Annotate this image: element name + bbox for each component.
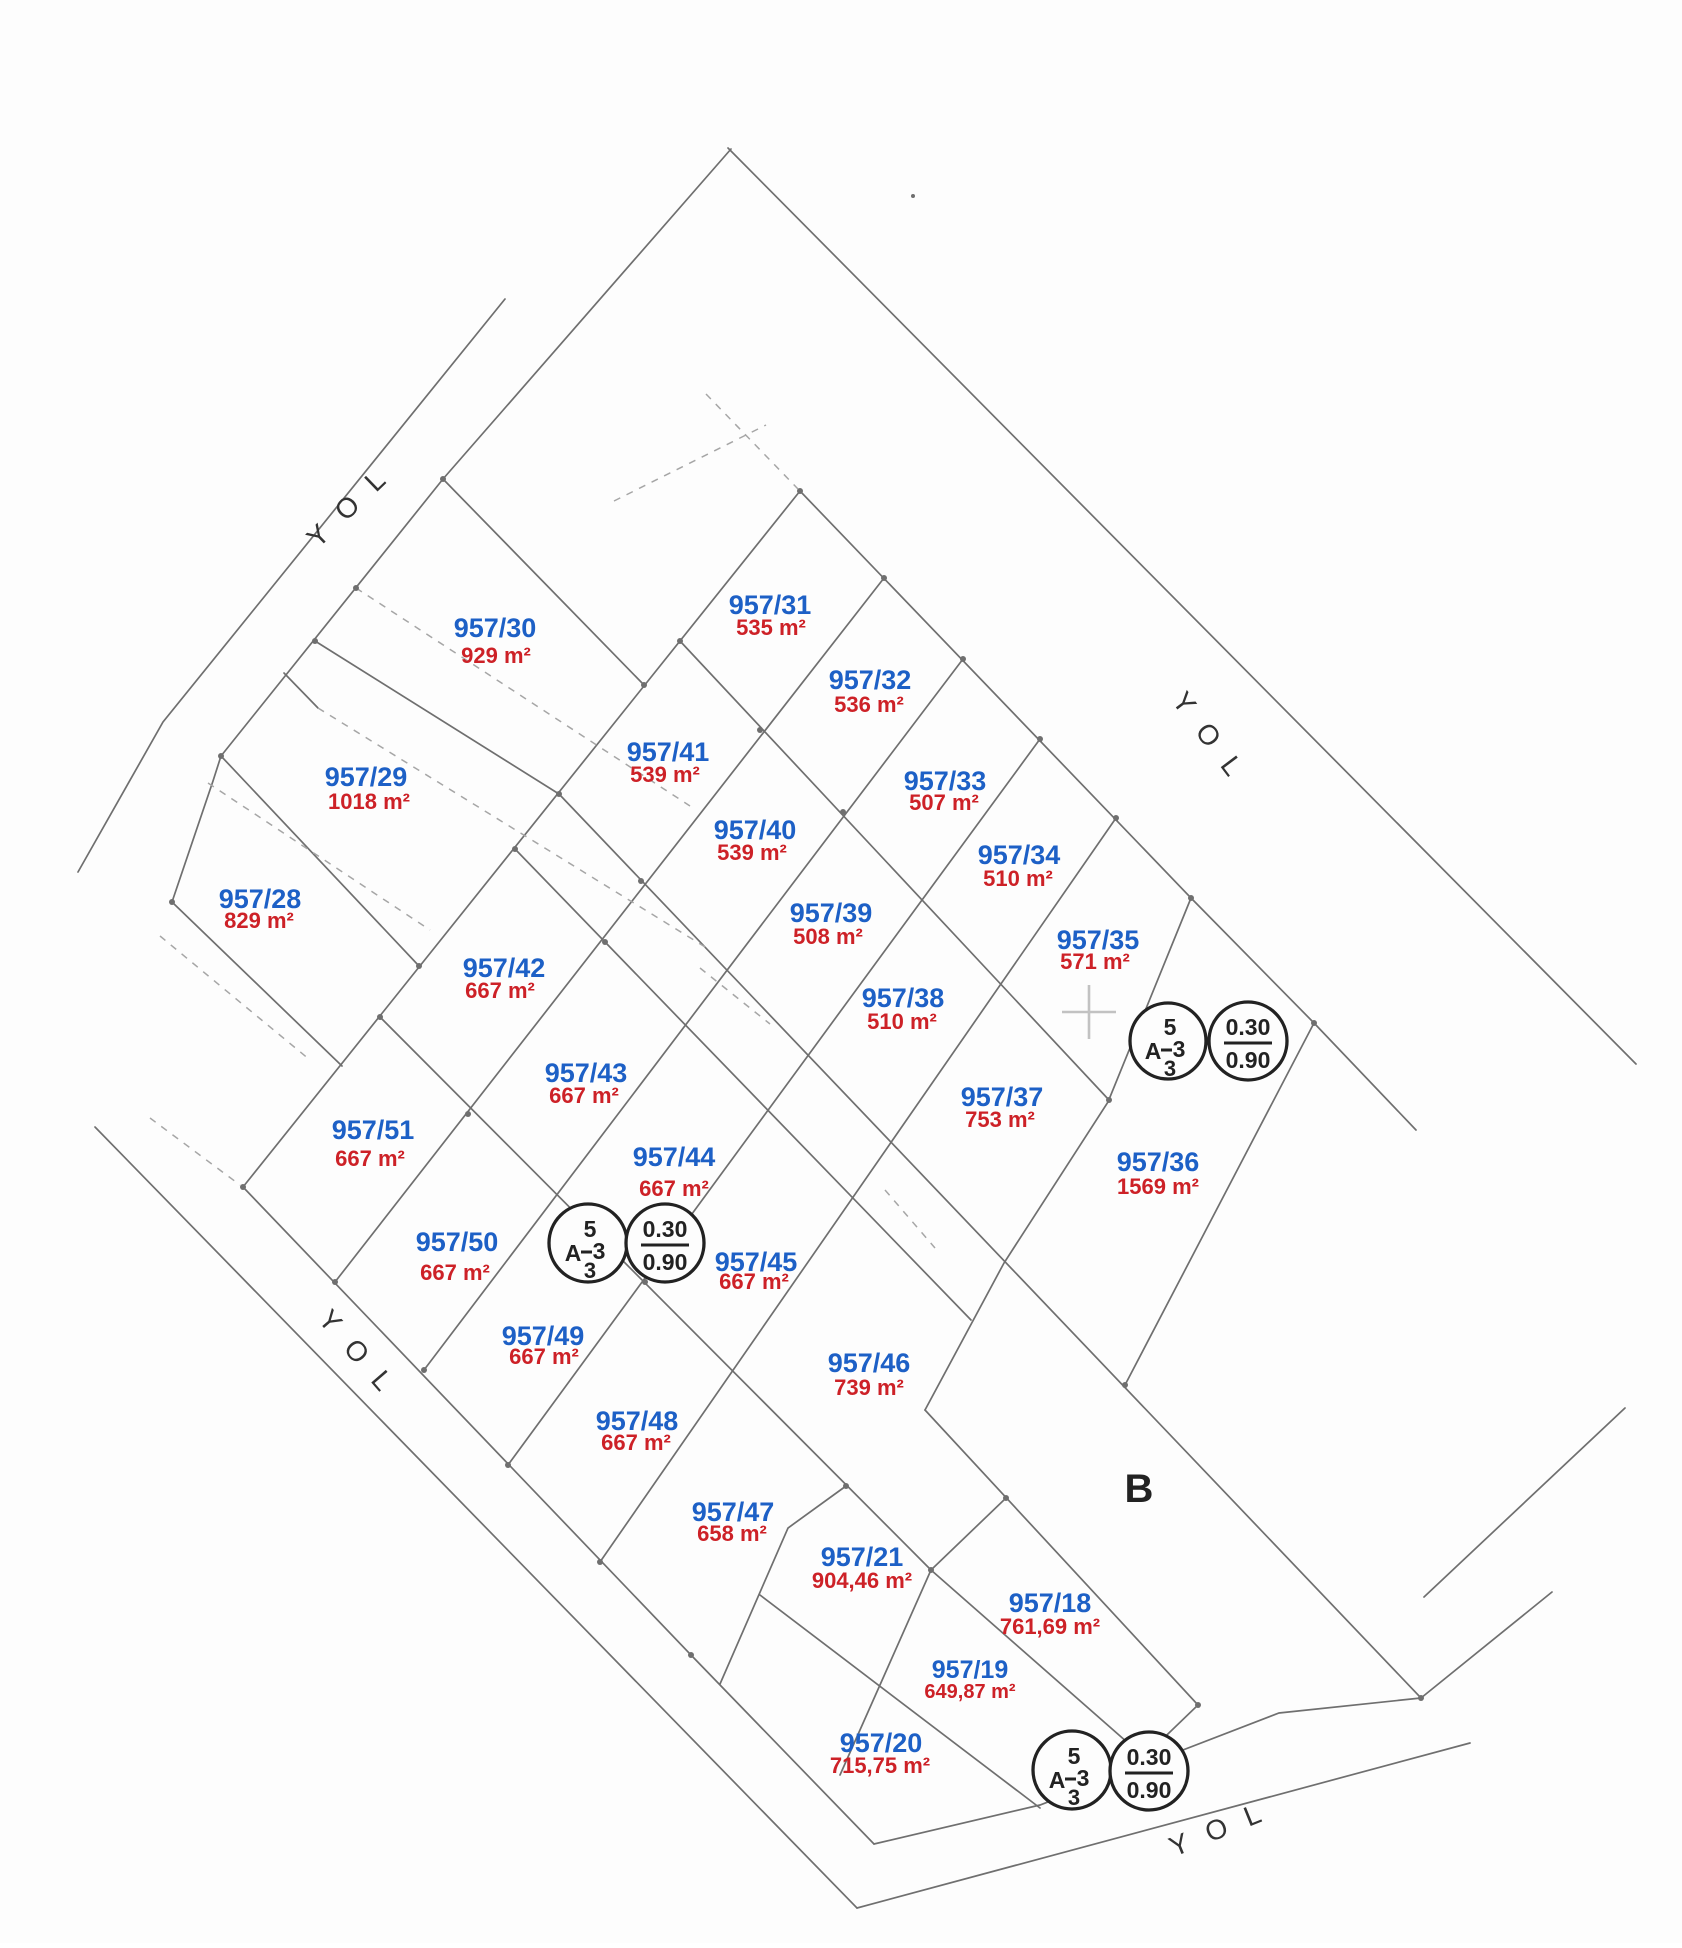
svg-text:929 m²: 929 m² — [461, 643, 531, 668]
svg-text:535 m²: 535 m² — [736, 615, 806, 640]
svg-text:0.90: 0.90 — [1127, 1777, 1172, 1803]
svg-text:508 m²: 508 m² — [793, 924, 863, 949]
svg-text:510 m²: 510 m² — [867, 1009, 937, 1034]
svg-text:0.30: 0.30 — [1127, 1744, 1172, 1770]
svg-text:957/29: 957/29 — [325, 762, 408, 792]
svg-text:539 m²: 539 m² — [717, 840, 787, 865]
svg-text:667 m²: 667 m² — [601, 1430, 671, 1455]
svg-text:649,87 m²: 649,87 m² — [924, 1681, 1016, 1703]
svg-text:667 m²: 667 m² — [420, 1260, 490, 1285]
svg-text:667 m²: 667 m² — [719, 1269, 789, 1294]
svg-text:B: B — [1125, 1467, 1154, 1511]
svg-text:667 m²: 667 m² — [639, 1176, 709, 1201]
svg-text:957/36: 957/36 — [1117, 1147, 1200, 1177]
svg-text:667 m²: 667 m² — [549, 1083, 619, 1108]
svg-text:667 m²: 667 m² — [509, 1344, 579, 1369]
svg-text:957/32: 957/32 — [829, 665, 912, 695]
svg-text:536 m²: 536 m² — [834, 692, 904, 717]
svg-text:0.30: 0.30 — [1226, 1014, 1271, 1040]
svg-text:0.90: 0.90 — [1226, 1047, 1271, 1073]
svg-text:957/50: 957/50 — [416, 1227, 499, 1257]
svg-text:0.30: 0.30 — [643, 1216, 688, 1242]
svg-text:957/46: 957/46 — [828, 1348, 911, 1378]
svg-text:507 m²: 507 m² — [909, 790, 979, 815]
svg-text:A: A — [1049, 1767, 1066, 1793]
svg-text:957/19: 957/19 — [932, 1656, 1008, 1684]
svg-text:761,69 m²: 761,69 m² — [1000, 1614, 1100, 1639]
svg-text:510 m²: 510 m² — [983, 866, 1053, 891]
svg-text:957/30: 957/30 — [454, 613, 537, 643]
svg-text:715,75 m²: 715,75 m² — [830, 1753, 930, 1778]
svg-text:571 m²: 571 m² — [1060, 949, 1130, 974]
svg-text:739 m²: 739 m² — [834, 1375, 904, 1400]
svg-text:957/51: 957/51 — [332, 1115, 415, 1145]
svg-text:658 m²: 658 m² — [697, 1521, 767, 1546]
svg-text:667 m²: 667 m² — [335, 1146, 405, 1171]
svg-text:3: 3 — [1068, 1785, 1080, 1810]
svg-text:3: 3 — [584, 1258, 596, 1283]
svg-text:1018 m²: 1018 m² — [328, 789, 410, 814]
svg-text:753 m²: 753 m² — [965, 1107, 1035, 1132]
svg-text:904,46 m²: 904,46 m² — [812, 1568, 912, 1593]
svg-text:539 m²: 539 m² — [630, 762, 700, 787]
svg-text:1569 m²: 1569 m² — [1117, 1174, 1199, 1199]
svg-text:A: A — [565, 1240, 582, 1266]
svg-text:667 m²: 667 m² — [465, 978, 535, 1003]
svg-text:3: 3 — [1164, 1056, 1176, 1081]
svg-text:829 m²: 829 m² — [224, 908, 294, 933]
svg-text:A: A — [1145, 1038, 1162, 1064]
svg-text:0.90: 0.90 — [643, 1249, 688, 1275]
svg-text:957/44: 957/44 — [633, 1142, 716, 1172]
